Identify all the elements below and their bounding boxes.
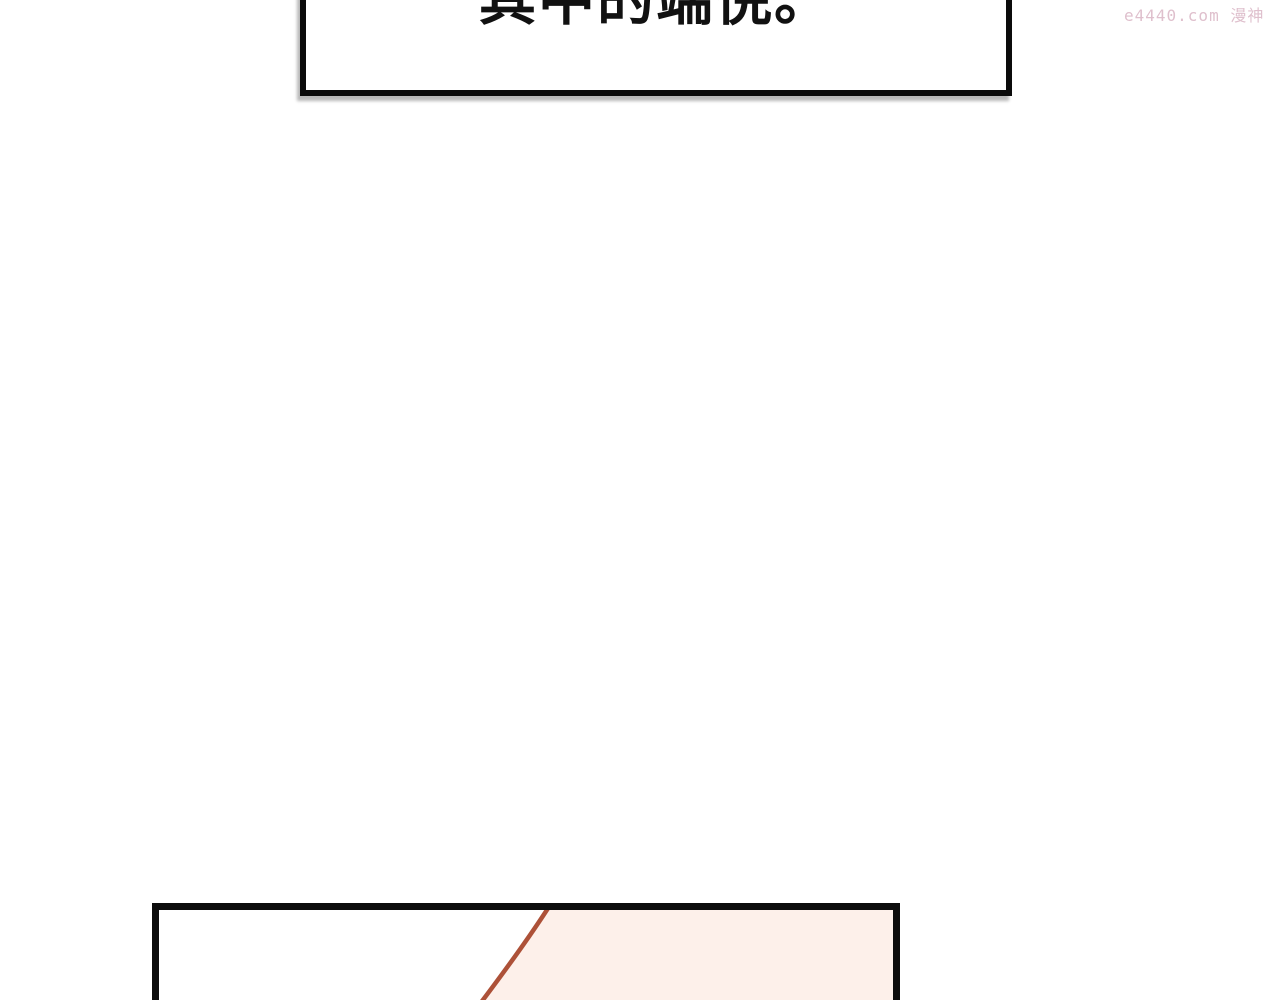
peach-region [405,910,893,1000]
speech-box: 其中的端倪。 [300,0,1012,96]
watermark-text: e4440.com 漫神 [1124,2,1264,26]
comic-page: 其中的端倪。 e4440.com 漫神 [0,0,1280,1000]
comic-panel [152,903,900,1000]
panel-artwork [159,910,893,1000]
speech-text: 其中的端倪。 [306,0,1006,29]
